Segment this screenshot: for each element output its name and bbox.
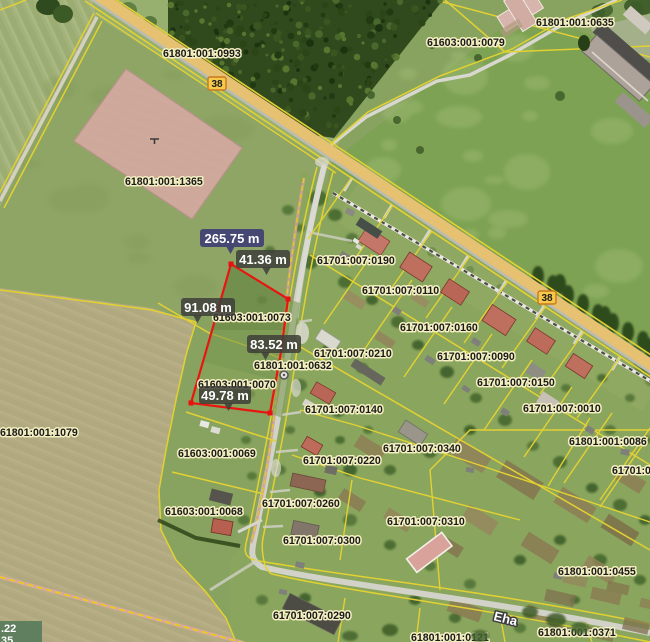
svg-text:61701:007:0310: 61701:007:0310 xyxy=(387,516,465,528)
svg-text:.22: .22 xyxy=(1,623,16,635)
svg-text:61701:007:0340: 61701:007:0340 xyxy=(383,443,461,455)
svg-text:61801:001:0455: 61801:001:0455 xyxy=(558,566,636,578)
svg-text:61801:001:1079: 61801:001:1079 xyxy=(0,427,78,439)
svg-text:61801:001:0086: 61801:001:0086 xyxy=(569,436,647,448)
svg-text:61603:001:0068: 61603:001:0068 xyxy=(165,506,243,518)
svg-text:61801:001:1365: 61801:001:1365 xyxy=(125,176,203,188)
svg-text:49.78 m: 49.78 m xyxy=(201,388,249,403)
svg-text:61801:001:0632: 61801:001:0632 xyxy=(254,360,332,372)
svg-text:83.52 m: 83.52 m xyxy=(250,337,298,352)
svg-text:61701:007:0160: 61701:007:0160 xyxy=(400,322,478,334)
svg-text:61603:001:0079: 61603:001:0079 xyxy=(427,37,505,49)
svg-text:61701:007:0150: 61701:007:0150 xyxy=(477,377,555,389)
svg-text:61701:007:0290: 61701:007:0290 xyxy=(273,610,351,622)
svg-text:61801:001:0635: 61801:001:0635 xyxy=(536,17,614,29)
svg-text:61701:007:0090: 61701:007:0090 xyxy=(437,351,515,363)
svg-text:61701:007:0260: 61701:007:0260 xyxy=(262,498,340,510)
svg-text:61701:00: 61701:00 xyxy=(612,465,650,477)
svg-text:38: 38 xyxy=(541,293,553,304)
svg-text:91.08 m: 91.08 m xyxy=(184,300,232,315)
svg-text:61701:007:0300: 61701:007:0300 xyxy=(283,535,361,547)
svg-text:61701:007:0110: 61701:007:0110 xyxy=(362,285,439,297)
svg-text:38: 38 xyxy=(211,79,223,90)
svg-text:35: 35 xyxy=(1,635,13,642)
svg-text:61701:007:0010: 61701:007:0010 xyxy=(523,403,601,415)
svg-text:61701:007:0140: 61701:007:0140 xyxy=(305,404,383,416)
svg-text:265.75 m: 265.75 m xyxy=(205,231,260,246)
svg-text:61701:007:0190: 61701:007:0190 xyxy=(317,255,395,267)
svg-text:61603:001:0069: 61603:001:0069 xyxy=(178,448,256,460)
svg-text:61801:001:0993: 61801:001:0993 xyxy=(163,48,241,60)
svg-text:41.36 m: 41.36 m xyxy=(239,252,287,267)
svg-text:61701:007:0210: 61701:007:0210 xyxy=(314,348,392,360)
svg-text:61701:007:0220: 61701:007:0220 xyxy=(303,455,381,467)
